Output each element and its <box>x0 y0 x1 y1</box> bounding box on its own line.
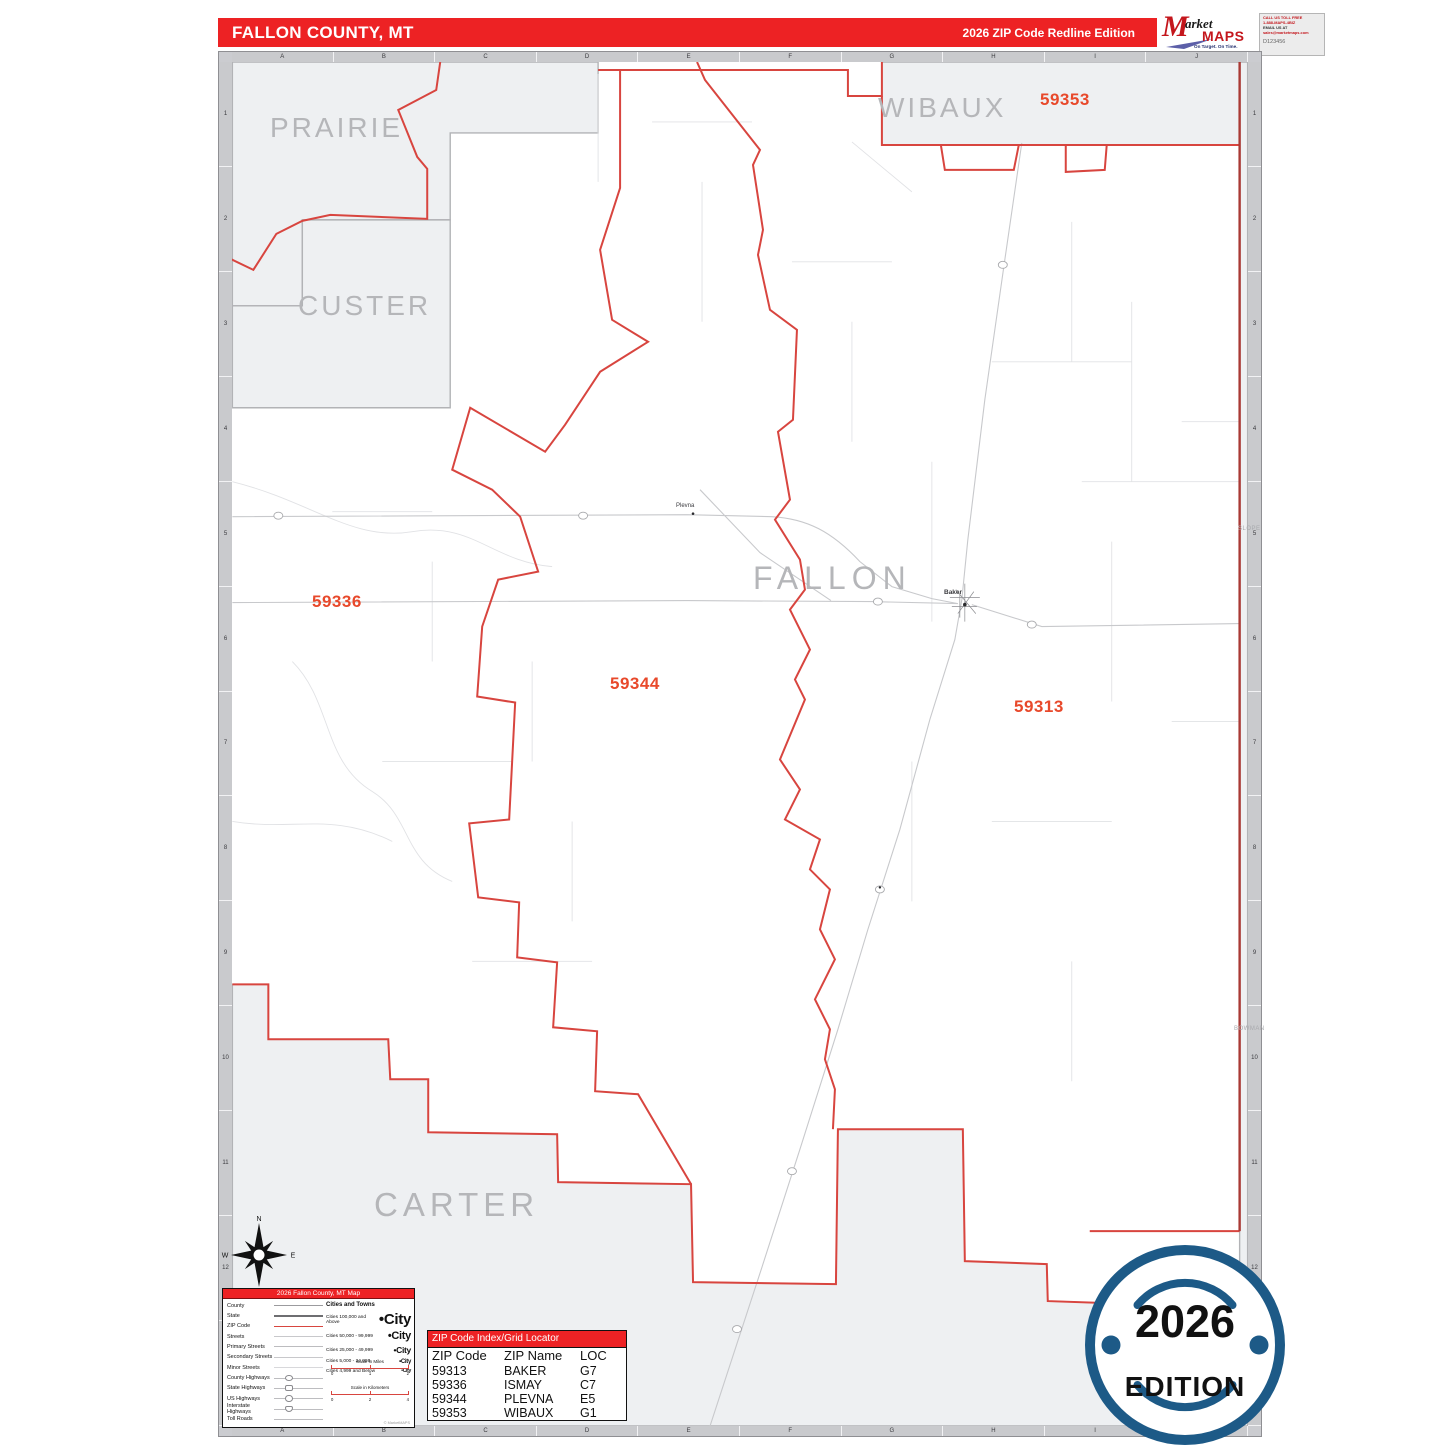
legend-cities-header: Cities and Towns <box>326 1302 411 1308</box>
zip-index-cell: 59344 <box>432 1392 504 1406</box>
compass-w-label: W <box>222 1253 229 1260</box>
scale-tick: 2 <box>369 1397 371 1402</box>
legend-item-label: County Highways <box>227 1375 274 1381</box>
legend-copyright: © MarketMAPS <box>384 1421 410 1425</box>
grid-label-A: A <box>232 52 334 62</box>
grid-label-G: G <box>842 1426 944 1436</box>
scale-tick: 2 <box>407 1371 409 1376</box>
zip-label-59353: 59353 <box>1040 90 1090 110</box>
scale-miles: Scale in Miles 012 <box>331 1359 409 1376</box>
zip-index-cell: 59313 <box>432 1364 504 1378</box>
legend-box: 2026 Fallon County, MT Map CountyStateZI… <box>222 1288 415 1428</box>
grid-label-5: 5 <box>1248 482 1261 587</box>
grid-label-F: F <box>740 52 842 62</box>
badge-year: 2026 <box>1135 1296 1235 1347</box>
legend-item-streets: Streets <box>227 1333 323 1340</box>
compass-n-label: N <box>256 1216 261 1223</box>
legend-shield-icon <box>285 1395 293 1402</box>
grid-label-D: D <box>537 52 639 62</box>
city-class-label: Cities 50,000 - 99,999 <box>326 1334 373 1339</box>
zip-index-row: 59336ISMAYC7 <box>428 1378 626 1392</box>
zip-col-header: ZIP Code <box>432 1348 504 1364</box>
zip-index-header-row: ZIP CodeZIP NameLOC <box>428 1348 626 1364</box>
legend-shield-icon <box>285 1375 293 1382</box>
grid-label-5: 5 <box>219 482 232 587</box>
grid-label-9: 9 <box>1248 901 1261 1006</box>
contact-code: D123456 <box>1263 39 1321 46</box>
grid-label-7: 7 <box>219 692 232 797</box>
legend-item-label: Streets <box>227 1334 274 1340</box>
legend-line-sample <box>274 1357 323 1358</box>
legend-item-state: State <box>227 1312 323 1319</box>
logo-tagline: On Target. On Time. <box>1194 44 1237 49</box>
badge-label: EDITION <box>1125 1371 1246 1402</box>
grid-label-B: B <box>334 52 436 62</box>
grid-label-3: 3 <box>219 272 232 377</box>
zip-index-cell: C7 <box>580 1378 624 1392</box>
legend-shield-icon <box>285 1385 293 1392</box>
legend-line-sample <box>274 1378 323 1379</box>
edition-badge: 2026 EDITION <box>1080 1240 1290 1445</box>
grid-label-G: G <box>842 52 944 62</box>
legend-item-label: State <box>227 1313 274 1319</box>
zip-index-cell: 59336 <box>432 1378 504 1392</box>
grid-label-10: 10 <box>1248 1006 1261 1111</box>
compass-e-label: E <box>291 1253 296 1260</box>
zip-index-table: ZIP Code Index/Grid Locator ZIP CodeZIP … <box>427 1330 627 1421</box>
grid-label-8: 8 <box>1248 796 1261 901</box>
grid-label-J: J <box>1146 52 1248 62</box>
scale-km-title: Scale in Kilometers <box>331 1385 409 1390</box>
county-title: FALLON COUNTY, MT <box>218 23 414 43</box>
grid-label-11: 11 <box>219 1111 232 1216</box>
county-label-bowman: BOWMAN <box>1234 1026 1265 1032</box>
zip-label-59313: 59313 <box>1014 697 1064 717</box>
legend-line-sample <box>274 1346 323 1347</box>
grid-label-F: F <box>740 1426 842 1436</box>
header-bar: FALLON COUNTY, MT 2026 ZIP Code Redline … <box>218 18 1157 47</box>
scale-tick: 0 <box>331 1371 333 1376</box>
zip-label-59344: 59344 <box>610 674 660 694</box>
city-label-baker: Baker <box>944 589 962 596</box>
grid-ruler-right: 12345678910111213 <box>1248 62 1261 1426</box>
city-class-sample: •City <box>388 1331 411 1342</box>
grid-label-2: 2 <box>219 167 232 272</box>
legend-item-interstate-highways: Interstate Highways <box>227 1406 323 1413</box>
map-poster-page: FALLON COUNTY, MT 2026 ZIP Code Redline … <box>0 0 1445 1445</box>
county-label-prairie: PRAIRIE <box>270 112 403 144</box>
grid-label-E: E <box>638 52 740 62</box>
legend-city-class-row: Cities 100,000 and Above•City <box>326 1312 411 1327</box>
contact-box: CALL US TOLL FREE 1-888-MAPS-4BIZ EMAIL … <box>1259 13 1325 56</box>
zip-col-header: LOC <box>580 1348 624 1364</box>
grid-label-C: C <box>435 1426 537 1436</box>
scale-miles-title: Scale in Miles <box>331 1359 409 1364</box>
legend-item-zip-code: ZIP Code <box>227 1323 323 1330</box>
map-frame: ABCDEFGHIJ ABCDEFGHIJ 12345678910111213 … <box>218 51 1262 1437</box>
zip-index-row: 59344PLEVNAE5 <box>428 1392 626 1406</box>
legend-item-label: Primary Streets <box>227 1344 274 1350</box>
legend-line-sample <box>274 1409 323 1410</box>
legend-item-label: Minor Streets <box>227 1365 274 1371</box>
legend-item-label: ZIP Code <box>227 1323 274 1329</box>
zip-col-header: ZIP Name <box>504 1348 580 1364</box>
legend-line-sample <box>274 1367 323 1368</box>
legend-city-class-row: Cities 25,000 - 49,999•City <box>326 1346 411 1355</box>
legend-line-sample <box>274 1398 323 1399</box>
grid-label-11: 11 <box>1248 1111 1261 1216</box>
legend-line-sample <box>274 1326 323 1327</box>
legend-item-label: Interstate Highways <box>227 1403 274 1415</box>
legend-scales: Scale in Miles 012 Scale in Kilometers 0… <box>331 1359 409 1411</box>
legend-item-primary-streets: Primary Streets <box>227 1343 323 1350</box>
scale-kilometers: Scale in Kilometers 024 <box>331 1385 409 1402</box>
legend-item-us-highways: US Highways <box>227 1395 323 1402</box>
grid-label-1: 1 <box>1248 62 1261 167</box>
zip-index-title: ZIP Code Index/Grid Locator <box>428 1331 626 1348</box>
grid-label-1: 1 <box>219 62 232 167</box>
edition-title: 2026 ZIP Code Redline Edition <box>963 26 1157 40</box>
city-class-sample: •City <box>393 1346 411 1355</box>
city-label-plevna: Plevna <box>676 503 694 509</box>
county-label-wibaux: WIBAUX <box>878 92 1006 124</box>
zip-index-cell: G7 <box>580 1364 624 1378</box>
zip-index-cell: PLEVNA <box>504 1392 580 1406</box>
grid-label-6: 6 <box>1248 587 1261 692</box>
legend-title: 2026 Fallon County, MT Map <box>223 1289 414 1299</box>
zip-index-row: 59353WIBAUXG1 <box>428 1406 626 1420</box>
legend-city-class-row: Cities 50,000 - 99,999•City <box>326 1331 411 1342</box>
zip-label-59336: 59336 <box>312 592 362 612</box>
grid-label-9: 9 <box>219 901 232 1006</box>
legend-item-toll-roads: Toll Roads <box>227 1416 323 1423</box>
legend-item-label: Toll Roads <box>227 1416 274 1422</box>
zip-index-cell: E5 <box>580 1392 624 1406</box>
grid-ruler-top: ABCDEFGHIJ <box>232 52 1248 62</box>
legend-item-label: State Highways <box>227 1385 274 1391</box>
legend-item-secondary-streets: Secondary Streets <box>227 1354 323 1361</box>
grid-label-E: E <box>638 1426 740 1436</box>
scale-tick: 1 <box>369 1371 371 1376</box>
legend-line-items: CountyStateZIP CodeStreetsPrimary Street… <box>227 1302 323 1423</box>
logo-maps-text: MAPS <box>1202 28 1244 44</box>
legend-item-county: County <box>227 1302 323 1309</box>
legend-line-sample <box>274 1388 323 1389</box>
county-label-fallon: FALLON <box>753 560 912 597</box>
contact-line4: sales@marketmaps.com <box>1263 31 1321 36</box>
legend-line-sample <box>274 1305 323 1306</box>
legend-line-sample <box>274 1419 323 1420</box>
city-class-label: Cities 25,000 - 49,999 <box>326 1348 373 1353</box>
grid-label-8: 8 <box>219 796 232 901</box>
grid-label-H: H <box>943 1426 1045 1436</box>
legend-line-sample <box>274 1315 323 1317</box>
legend-shield-icon <box>285 1406 293 1413</box>
county-label-carter: CARTER <box>374 1186 539 1224</box>
zip-index-cell: WIBAUX <box>504 1406 580 1420</box>
map-content: PRAIRIE CUSTER WIBAUX FALLON CARTER 5935… <box>232 62 1248 1426</box>
grid-label-4: 4 <box>219 377 232 482</box>
zip-index-cell: ISMAY <box>504 1378 580 1392</box>
county-label-slope: SLOPE <box>1238 526 1261 532</box>
zip-index-row: 59313BAKERG7 <box>428 1364 626 1378</box>
grid-label-4: 4 <box>1248 377 1261 482</box>
grid-label-3: 3 <box>1248 272 1261 377</box>
zip-index-cell: BAKER <box>504 1364 580 1378</box>
grid-label-I: I <box>1045 52 1147 62</box>
legend-item-county-highways: County Highways <box>227 1375 323 1382</box>
legend-item-label: US Highways <box>227 1396 274 1402</box>
grid-label-7: 7 <box>1248 692 1261 797</box>
scale-tick: 4 <box>407 1397 409 1402</box>
legend-item-label: Secondary Streets <box>227 1354 274 1360</box>
grid-label-C: C <box>435 52 537 62</box>
grid-label-10: 10 <box>219 1006 232 1111</box>
county-label-custer: CUSTER <box>298 290 431 322</box>
city-class-sample: •City <box>379 1312 411 1327</box>
legend-line-sample <box>274 1336 323 1337</box>
zip-index-cell: G1 <box>580 1406 624 1420</box>
city-class-label: Cities 100,000 and Above <box>326 1315 379 1325</box>
grid-label-D: D <box>537 1426 639 1436</box>
legend-item-state-highways: State Highways <box>227 1385 323 1392</box>
grid-label-2: 2 <box>1248 167 1261 272</box>
scale-tick: 0 <box>331 1397 333 1402</box>
grid-label-6: 6 <box>219 587 232 692</box>
legend-item-label: County <box>227 1303 274 1309</box>
zip-index-cell: 59353 <box>432 1406 504 1420</box>
legend-item-minor-streets: Minor Streets <box>227 1364 323 1371</box>
grid-label-H: H <box>943 52 1045 62</box>
